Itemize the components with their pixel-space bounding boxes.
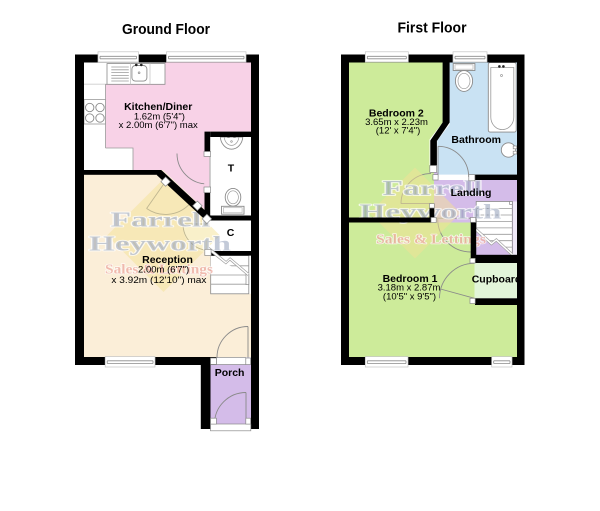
svg-text:x 3.92m (12'10") max: x 3.92m (12'10") max: [111, 275, 206, 286]
svg-text:Landing: Landing: [451, 187, 492, 199]
svg-text:Sales & Lettings: Sales & Lettings: [376, 233, 487, 248]
svg-text:(12' x 7'4"): (12' x 7'4"): [376, 125, 421, 136]
svg-text:First Floor: First Floor: [398, 20, 467, 37]
svg-text:C: C: [227, 227, 235, 239]
svg-text:Farrell: Farrell: [111, 208, 211, 232]
svg-text:(10'5" x 9'5"): (10'5" x 9'5"): [383, 291, 436, 302]
svg-text:x 2.00m (6'7") max: x 2.00m (6'7") max: [119, 120, 198, 131]
svg-text:Porch: Porch: [215, 367, 245, 379]
svg-text:2.00m (6'7"): 2.00m (6'7"): [138, 264, 189, 275]
svg-text:Bathroom: Bathroom: [451, 134, 501, 146]
svg-text:T: T: [228, 162, 235, 174]
svg-text:Ground Floor: Ground Floor: [122, 21, 210, 38]
svg-text:Cupboard: Cupboard: [472, 274, 522, 286]
